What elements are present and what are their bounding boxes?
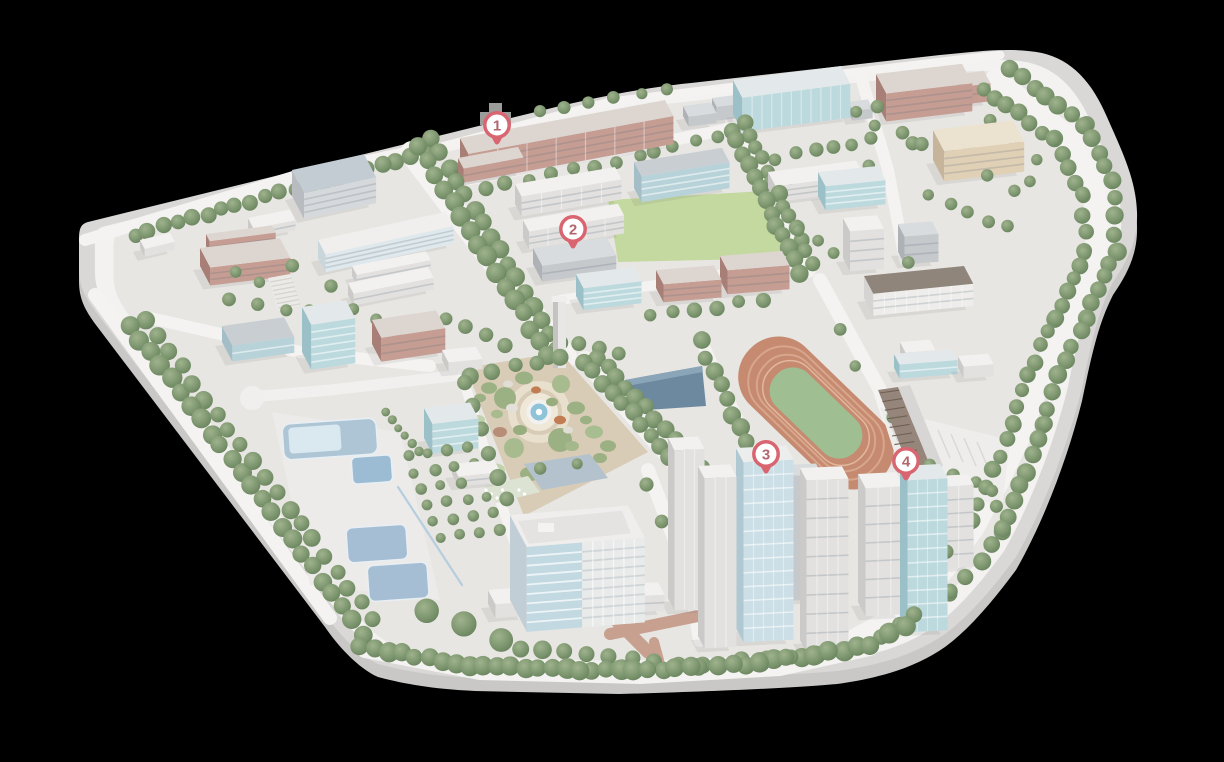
- svg-text:1: 1: [493, 117, 501, 134]
- svg-text:3: 3: [762, 446, 770, 463]
- svg-text:2: 2: [569, 221, 577, 238]
- svg-text:4: 4: [902, 453, 911, 470]
